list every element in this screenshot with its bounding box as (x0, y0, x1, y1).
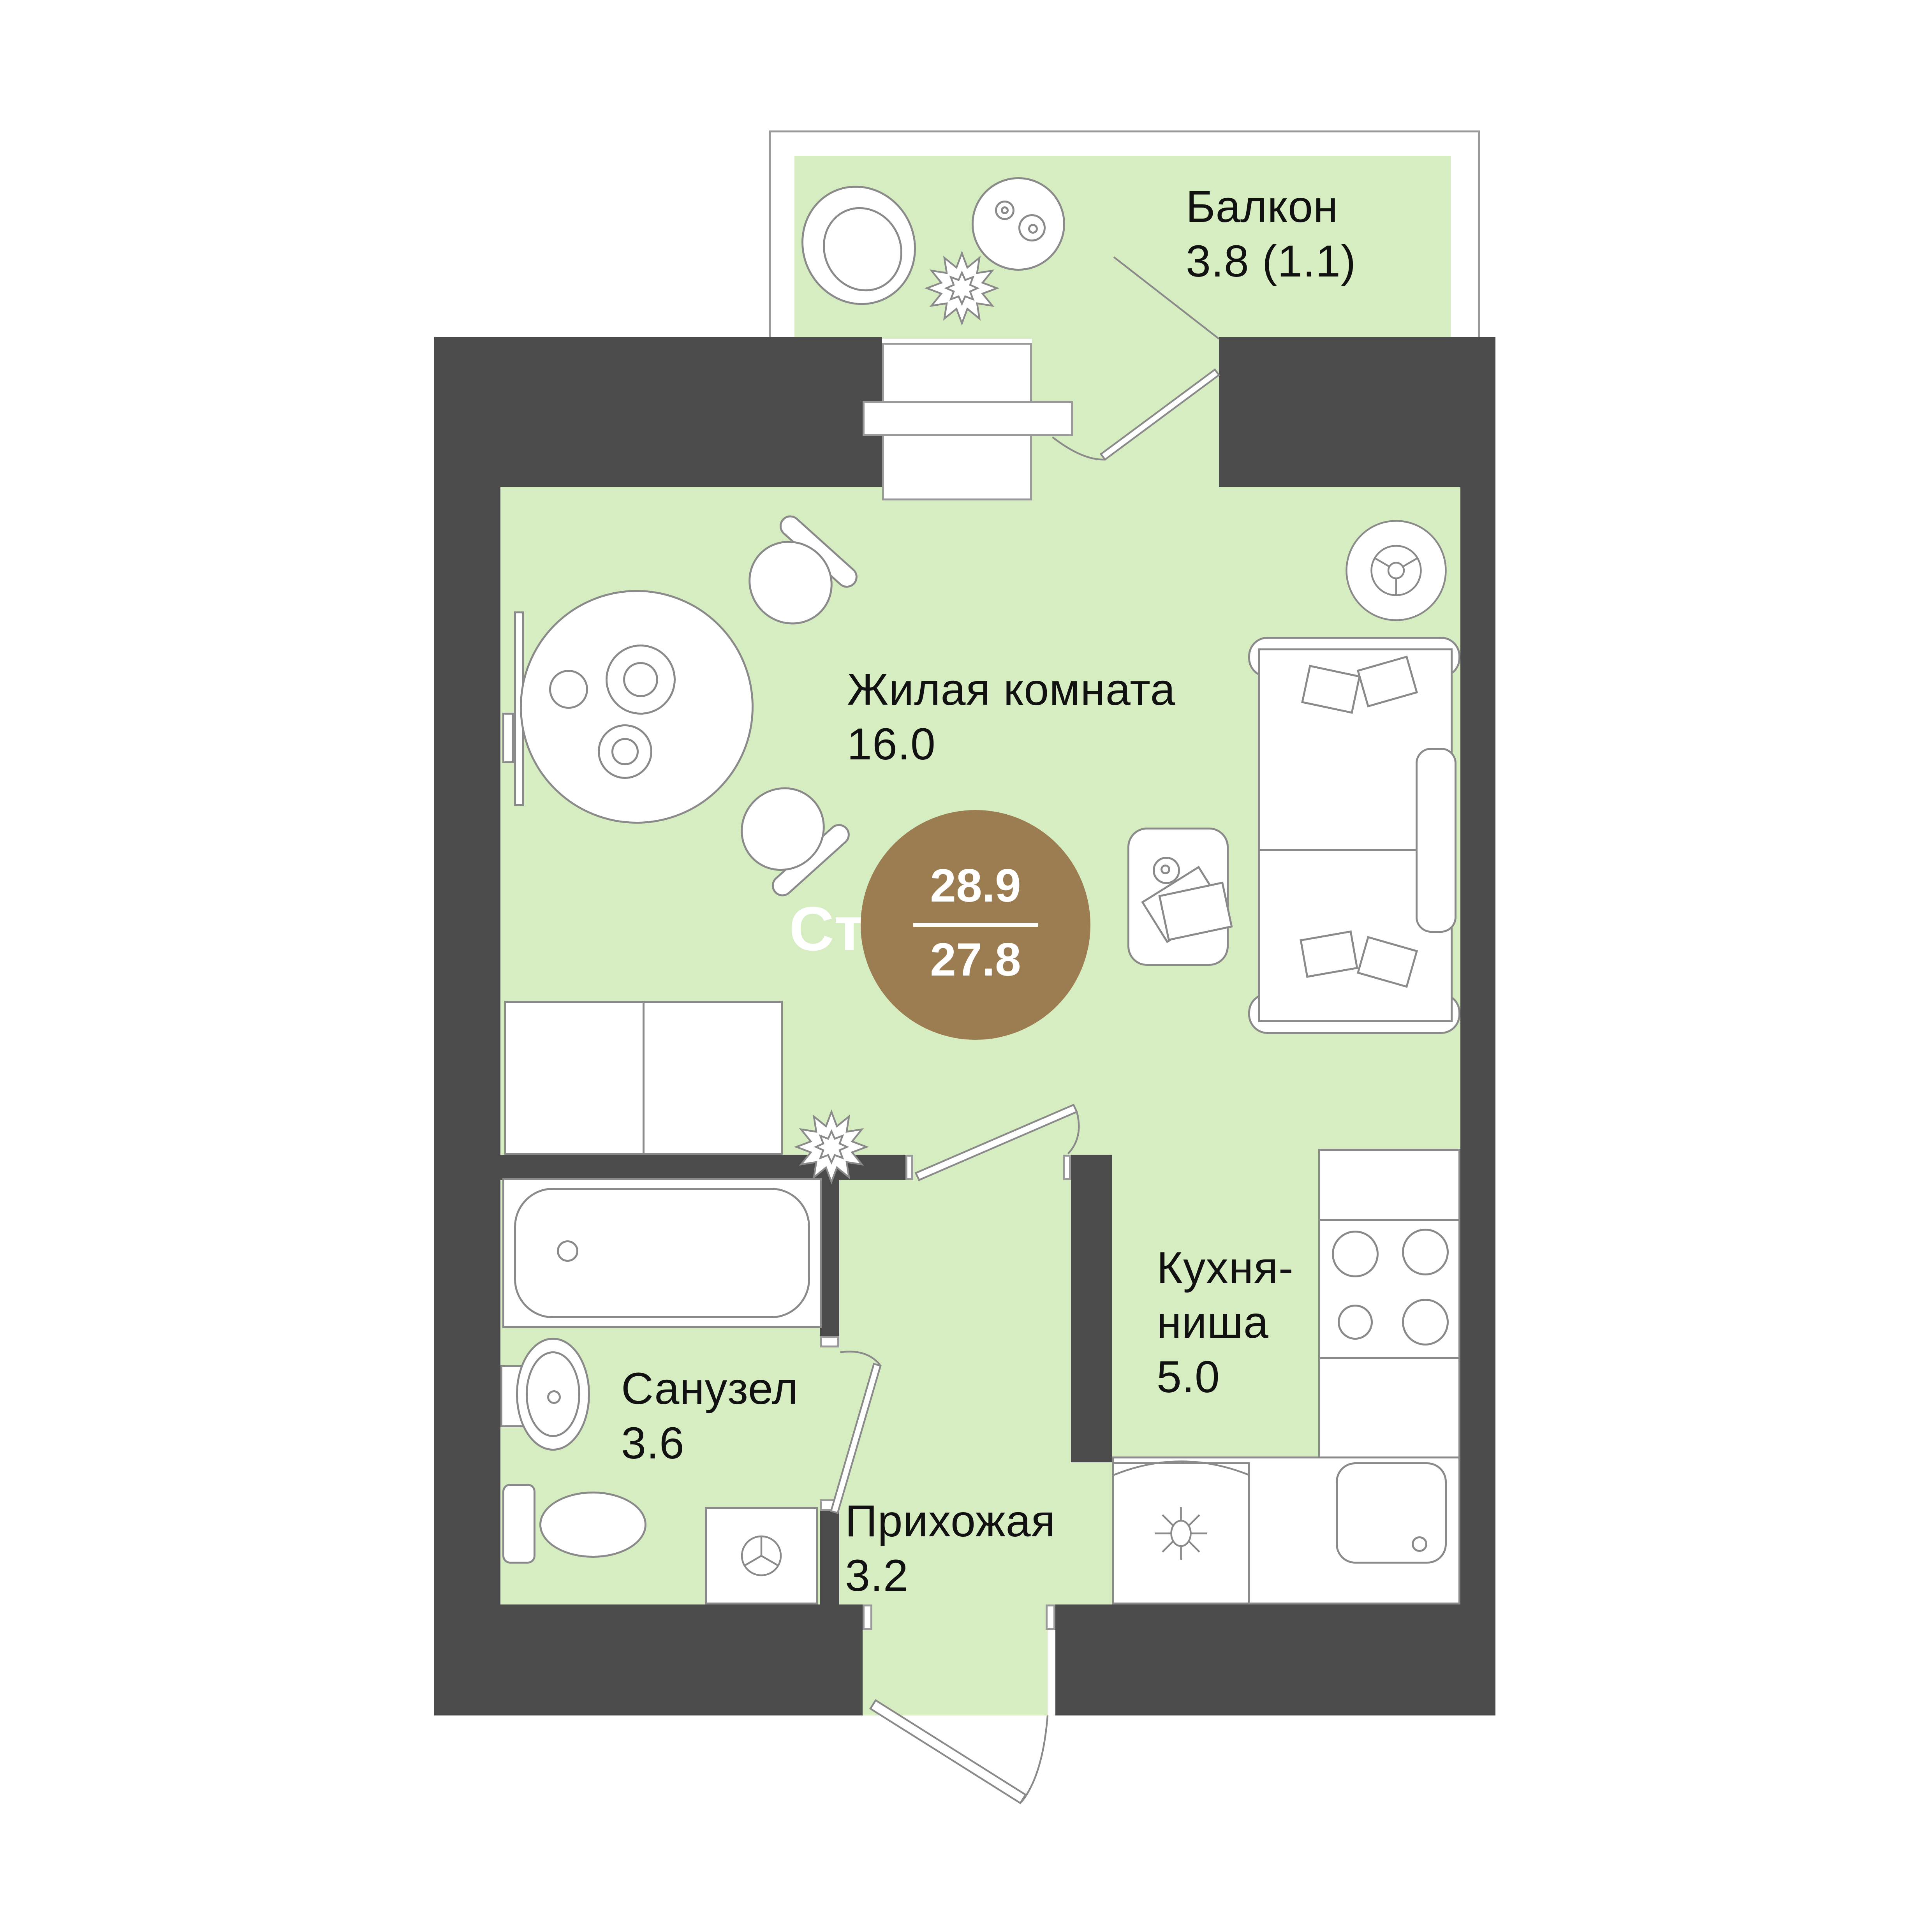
entrance-door-arc (1021, 1715, 1048, 1802)
plant-center (1388, 563, 1404, 578)
bathroom-door-leaf (831, 1364, 881, 1513)
snowflake-center (1171, 1521, 1191, 1546)
total-area-value: 28.9 (930, 861, 1021, 915)
fridge-arc (1114, 1462, 1249, 1475)
floorplan-canvas: Ст 28.9 27.8 Балкон 3.8 (1.1) Жилая комн… (0, 0, 1932, 1932)
living-room-name: Жилая комната (847, 662, 1176, 717)
balcony-name: Балкон (1186, 179, 1356, 234)
hallway-label: Прихожая 3.2 (845, 1493, 1056, 1603)
balcony-plant-star-inner (946, 273, 977, 304)
badge-divider (913, 923, 1038, 927)
balcony-door-leaf (1101, 370, 1219, 460)
balcony-label: Балкон 3.8 (1.1) (1186, 179, 1356, 288)
apartment-type-label: Ст (759, 894, 865, 966)
living-door-leaf (916, 1105, 1077, 1180)
living-room-area: 16.0 (847, 717, 1176, 771)
bathroom-area: 3.6 (621, 1416, 798, 1470)
balcony-area: 3.8 (1.1) (1186, 234, 1356, 288)
floorplan: Ст 28.9 27.8 Балкон 3.8 (1.1) Жилая комн… (0, 0, 1932, 1932)
living-plant-star-inner (816, 1131, 847, 1162)
living-area-value: 27.8 (930, 935, 1021, 989)
kitchen-name-line2: ниша (1157, 1295, 1294, 1349)
bathroom-name: Санузел (621, 1361, 798, 1416)
entrance-door-leaf (870, 1700, 1026, 1803)
balcony-door-arc (1053, 437, 1105, 460)
kitchen-label: Кухня- ниша 5.0 (1157, 1240, 1294, 1404)
kitchen-name-line1: Кухня- (1157, 1240, 1294, 1295)
hallway-area: 3.2 (845, 1548, 1056, 1603)
living-door-arc (1068, 1112, 1079, 1154)
kitchen-area: 5.0 (1157, 1349, 1294, 1404)
living-room-label: Жилая комната 16.0 (847, 662, 1176, 771)
hallway-name: Прихожая (845, 1493, 1056, 1548)
area-badge: 28.9 27.8 (861, 810, 1090, 1040)
bathroom-label: Санузел 3.6 (621, 1361, 798, 1470)
